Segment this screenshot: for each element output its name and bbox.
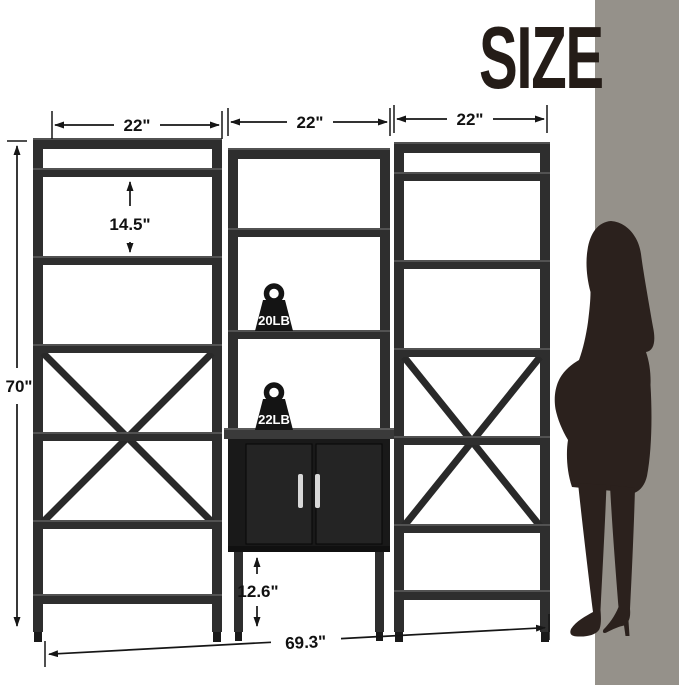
weight-capacity-upper: 20LB: [255, 286, 293, 331]
left-tower-post: [33, 140, 43, 632]
dim-label-left-width: 22": [124, 116, 151, 135]
middle-post: [380, 150, 390, 432]
right-tower: [394, 142, 550, 642]
woman-silhouette-icon: [555, 221, 655, 637]
dim-total-width: 69.3": [45, 614, 549, 667]
cabinet-top: [224, 430, 394, 439]
shelf-board: [394, 350, 550, 357]
leg-foot: [395, 632, 403, 642]
weight-label-22lb: 22LB: [258, 412, 290, 427]
right-tower-post: [540, 144, 550, 632]
shelf-board: [33, 434, 222, 441]
cabinet-door-right: [316, 444, 382, 544]
leg-foot: [213, 632, 221, 642]
shelf-board: [33, 140, 222, 149]
size-heading: SIZE: [479, 14, 603, 102]
shelf-board: [228, 332, 390, 339]
dim-total-height: 70": [6, 141, 33, 626]
dim-right-width: 22": [394, 105, 547, 133]
silhouette-body: [555, 221, 655, 493]
door-handle: [315, 474, 320, 508]
door-handle: [298, 474, 303, 508]
dim-label-middle-width: 22": [297, 113, 324, 132]
shelf-board: [228, 230, 390, 237]
dim-middle-width: 22": [228, 108, 390, 136]
shelf-board: [394, 438, 550, 445]
leg-foot: [235, 632, 242, 641]
leg-foot: [541, 632, 549, 642]
dim-label-right-width: 22": [457, 110, 484, 129]
shelf-board: [394, 592, 550, 600]
storage-cabinet: [224, 428, 394, 641]
middle-post: [228, 150, 238, 432]
shelf-board: [394, 144, 550, 153]
shelf-board: [394, 526, 550, 533]
shelf-board: [33, 258, 222, 265]
left-tower: [33, 138, 222, 642]
dim-tier-height: 14.5": [109, 182, 150, 252]
dim-bottom-clearance: 12.6": [237, 558, 278, 626]
shelf-board: [33, 346, 222, 353]
shelf-board: [33, 596, 222, 604]
weight-icon: [267, 286, 282, 301]
silhouette-back-leg: [603, 485, 635, 636]
leg-foot: [34, 632, 42, 642]
dim-label-tier-height: 14.5": [109, 215, 150, 234]
weight-label-20lb: 20LB: [258, 313, 290, 328]
dim-label-total-width: 69.3": [285, 632, 327, 653]
dim-left-width: 22": [52, 111, 222, 139]
shelf-board: [228, 150, 390, 159]
shelf-board: [33, 170, 222, 177]
shelf-board: [394, 262, 550, 269]
cabinet-leg: [375, 552, 384, 632]
middle-section: [224, 148, 394, 641]
right-tower-shelves: [394, 172, 550, 600]
product-size-diagram: 20LB 22LB 22" 22": [0, 0, 679, 685]
dim-label-bottom-clearance: 12.6": [237, 582, 278, 601]
silhouette-front-leg: [570, 483, 606, 637]
bookshelf-illustration: 20LB 22LB: [33, 138, 550, 642]
left-tower-post: [212, 140, 222, 632]
shelf-board: [394, 174, 550, 181]
shelf-board: [33, 522, 222, 529]
weight-capacity-lower: 22LB: [255, 385, 293, 430]
dim-label-total-height: 70": [6, 377, 33, 396]
right-tower-post: [394, 144, 404, 632]
weight-icon: [267, 385, 282, 400]
